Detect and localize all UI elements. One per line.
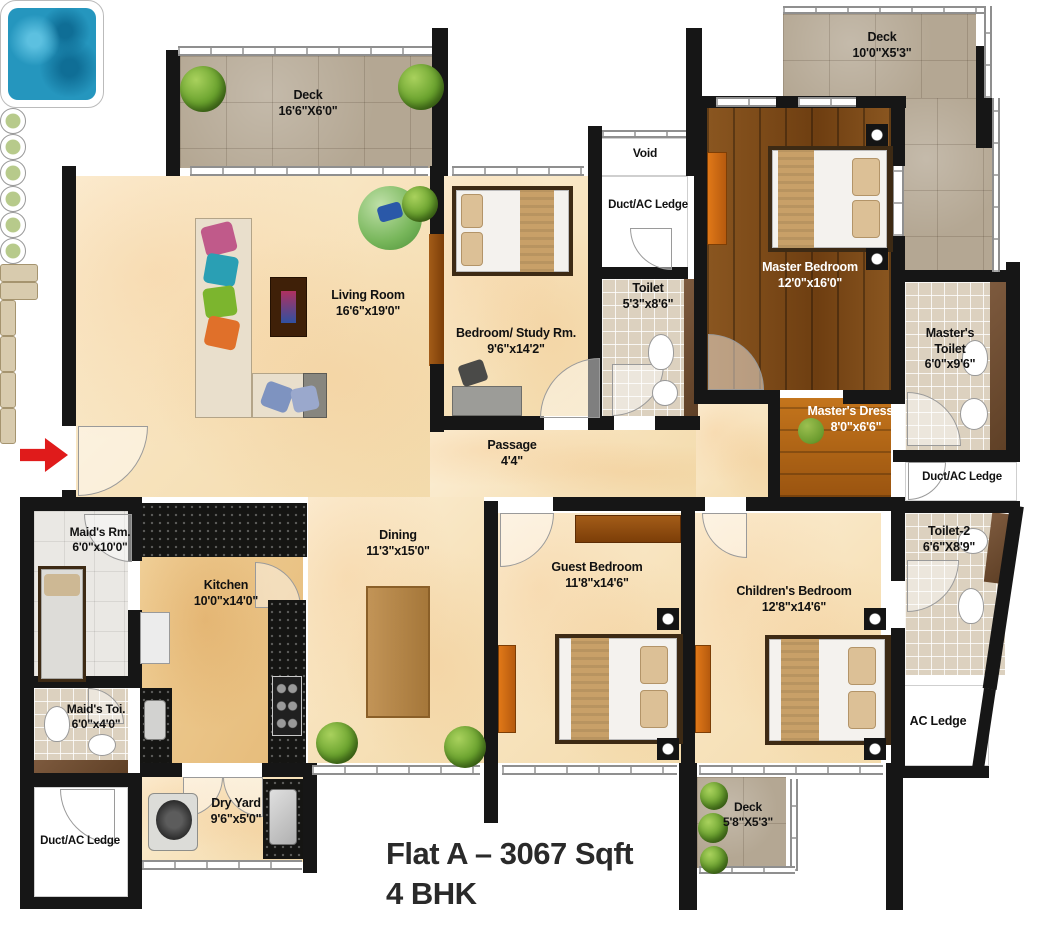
- wall: [438, 416, 544, 430]
- room-name: Master's Toilet: [926, 326, 975, 356]
- kitchen-stove: [272, 676, 302, 736]
- sofa-pillow: [202, 285, 238, 319]
- wall: [1006, 262, 1020, 458]
- floor-plan: Deck 16'6"X6'0" Living Room 16'6"x19'0" …: [0, 0, 1050, 925]
- wall: [746, 497, 905, 511]
- maids-toilet-sill: [34, 760, 128, 773]
- wall: [768, 398, 780, 497]
- wall: [600, 267, 688, 279]
- room-name: Master Bedroom: [762, 260, 858, 274]
- room-label-maids-room: Maid's Rm. 6'0"x10'0": [70, 525, 131, 555]
- room-label-toilet-1: Toilet 5'3"x8'6": [623, 281, 674, 312]
- master-bed-pillow: [852, 158, 880, 196]
- plant: [402, 186, 438, 222]
- room-dims: 4'4": [487, 454, 536, 470]
- wall: [891, 628, 905, 775]
- plan-title-line1: Flat A – 3067 Sqft: [386, 834, 633, 874]
- dining-chair: [0, 264, 38, 282]
- guest-wardrobe: [575, 515, 681, 543]
- room-label-deck-bottom: Deck 5'8"X5'3": [723, 800, 773, 830]
- children-tv-console: [695, 645, 711, 733]
- room-dims: 16'6"x19'0": [331, 304, 405, 320]
- room-label-deck-top-right: Deck 10'0"X5'3": [853, 30, 912, 61]
- column-post: [864, 738, 886, 760]
- dining-chair: [0, 372, 16, 408]
- masters-toilet-vanity: [990, 282, 1006, 450]
- study-bed-pillow: [461, 194, 483, 228]
- room-dims: 5'3"x8'6": [623, 297, 674, 313]
- room-label-kitchen: Kitchen 10'0"x14'0": [194, 578, 258, 609]
- room-dims: 11'8"x14'6": [551, 576, 642, 592]
- room-label-master-bedroom: Master Bedroom 12'0"x16'0": [762, 260, 858, 291]
- dining-plate: [0, 160, 26, 186]
- master-window: [798, 97, 856, 107]
- masters-toilet-sink: [960, 398, 988, 430]
- plant: [316, 722, 358, 764]
- room-label-duct-bottom-left: Duct/AC Ledge: [40, 834, 120, 848]
- room-label-duct-right: Duct/AC Ledge: [922, 470, 1002, 484]
- wall: [891, 501, 905, 581]
- room-dims: 8'0"x6'6": [807, 420, 904, 436]
- deck-tr-railing: [783, 6, 985, 14]
- toilet-1-sink: [652, 380, 678, 406]
- guest-tv-console: [498, 645, 516, 733]
- kitchen-top-counter: [140, 503, 307, 557]
- room-name: Toilet-2: [928, 524, 970, 538]
- room-dims: 6'0"x10'0": [70, 540, 131, 555]
- master-bed-pillow: [852, 200, 880, 238]
- room-dims: 12'8"x14'6": [736, 600, 851, 616]
- wall: [891, 96, 905, 166]
- guest-window: [502, 765, 677, 775]
- bedroom-study-window: [452, 166, 584, 176]
- dining-window: [312, 765, 480, 775]
- tv-screen: [281, 291, 296, 323]
- plan-title-line2: 4 BHK: [386, 874, 633, 914]
- master-bed-blanket: [778, 150, 814, 248]
- room-label-ac-ledge: AC Ledge: [910, 714, 967, 730]
- guest-bed-pillow: [640, 690, 668, 728]
- dining-plate: [0, 238, 26, 264]
- jacuzzi-deck-railing: [992, 98, 1000, 272]
- dining-plate: [0, 186, 26, 212]
- column-post: [657, 608, 679, 630]
- room-name: Kitchen: [204, 578, 248, 592]
- wall: [128, 773, 142, 909]
- room-name: Living Room: [331, 288, 405, 302]
- master-tv-console: [707, 152, 727, 245]
- room-name: Duct/AC Ledge: [40, 835, 120, 847]
- column-post: [657, 738, 679, 760]
- room-name: Passage: [487, 438, 536, 452]
- wall: [303, 763, 317, 873]
- room-name: Duct/AC Ledge: [922, 471, 1002, 483]
- room-name: AC Ledge: [910, 714, 967, 728]
- column-post: [866, 248, 888, 270]
- guest-bed-blanket: [571, 638, 609, 740]
- room-label-living: Living Room 16'6"x19'0": [331, 288, 405, 319]
- room-label-maids-toilet: Maid's Toi. 6'0"x4'0": [67, 702, 125, 732]
- maid-bed-pillow: [44, 574, 80, 596]
- dining-plate: [0, 134, 26, 160]
- wall: [62, 166, 76, 426]
- plant: [180, 66, 226, 112]
- room-label-guest-bedroom: Guest Bedroom 11'8"x14'6": [551, 560, 642, 591]
- room-dims: 6'0"x9'6": [911, 357, 989, 373]
- room-dims: 9'6"x5'0": [211, 812, 262, 828]
- wall: [905, 501, 1020, 513]
- room-label-masters-dresser: Master's Dresser 8'0"x6'6": [807, 404, 904, 435]
- room-name: Deck: [734, 800, 762, 814]
- wall: [20, 897, 142, 909]
- wall: [262, 763, 307, 777]
- room-label-dining: Dining 11'3"x15'0": [366, 528, 430, 559]
- room-name: Dining: [379, 528, 417, 542]
- room-dims: 10'0"X5'3": [853, 46, 912, 62]
- washing-machine-drum: [156, 800, 192, 840]
- maids-toilet-sink: [88, 734, 116, 756]
- plant: [398, 64, 444, 110]
- study-bed-pillow: [461, 232, 483, 266]
- wall: [20, 773, 142, 787]
- room-dims: 11'3"x15'0": [366, 544, 430, 560]
- dining-chair: [0, 408, 16, 444]
- wall: [893, 766, 989, 778]
- room-label-bedroom-study: Bedroom/ Study Rm. 9'6"x14'2": [456, 326, 576, 357]
- room-name: Duct/AC Ledge: [608, 199, 688, 211]
- wall: [600, 416, 614, 430]
- wall: [20, 497, 142, 511]
- room-name: Children's Bedroom: [736, 584, 851, 598]
- room-label-duct-top: Duct/AC Ledge: [608, 198, 688, 212]
- guest-bed-pillow: [640, 646, 668, 684]
- plant: [700, 846, 728, 874]
- sofa-pillow: [203, 252, 240, 287]
- plant: [444, 726, 486, 768]
- wall: [679, 763, 697, 910]
- children-bed-blanket: [781, 639, 819, 741]
- room-dims: 10'0"x14'0": [194, 594, 258, 610]
- wall: [886, 763, 903, 910]
- column-post: [866, 124, 888, 146]
- wall: [694, 96, 707, 392]
- deck-railing: [178, 46, 432, 56]
- room-name: Deck: [293, 88, 322, 102]
- wall: [140, 763, 182, 777]
- room-dims: 16'6"X6'0": [279, 104, 338, 120]
- room-name: Deck: [867, 30, 896, 44]
- room-dims: 9'6"x14'2": [456, 342, 576, 358]
- toilet-2-wc: [958, 588, 984, 624]
- study-desk: [452, 386, 522, 416]
- master-window: [716, 97, 776, 107]
- jacuzzi-water: [8, 8, 96, 100]
- room-name: Maid's Rm.: [70, 525, 131, 539]
- living-bedroom-door-panel: [429, 234, 444, 366]
- jacuzzi: [0, 0, 104, 108]
- living-window: [190, 166, 428, 176]
- room-label-void: Void: [633, 146, 657, 161]
- kitchen-fridge: [140, 612, 170, 664]
- room-label-passage: Passage 4'4": [487, 438, 536, 469]
- sofa-pillow: [203, 315, 241, 351]
- room-name: Bedroom/ Study Rm.: [456, 326, 576, 340]
- study-bed-blanket: [520, 190, 554, 272]
- dry-yard-railing: [142, 860, 302, 870]
- wall: [484, 775, 498, 823]
- room-dims: 6'6"X8'9": [923, 540, 975, 556]
- wall: [681, 501, 695, 773]
- dining-chair: [0, 336, 16, 372]
- dry-yard-sink: [269, 789, 297, 845]
- deck-tr-railing: [984, 6, 992, 98]
- wall: [166, 50, 180, 176]
- dining-table: [366, 586, 430, 718]
- wall: [655, 416, 700, 430]
- room-label-masters-toilet: Master's Toilet 6'0"x9'6": [911, 326, 989, 373]
- room-dims: 5'8"X5'3": [723, 815, 773, 830]
- room-name: Master's Dresser: [807, 404, 904, 418]
- dining-plate: [0, 108, 26, 134]
- wall: [20, 497, 34, 909]
- room-name: Maid's Toi.: [67, 702, 125, 716]
- room-name: Dry Yard: [211, 796, 261, 810]
- room-name: Void: [633, 146, 657, 160]
- wall: [891, 236, 905, 404]
- room-dims: 12'0"x16'0": [762, 276, 858, 292]
- children-window: [699, 765, 883, 775]
- room-label-children-bedroom: Children's Bedroom 12'8"x14'6": [736, 584, 851, 615]
- dining-chair: [0, 300, 16, 336]
- wall: [893, 450, 1020, 462]
- kitchen-sink: [144, 700, 166, 740]
- wall: [484, 501, 498, 775]
- room-label-dry-yard: Dry Yard 9'6"x5'0": [211, 796, 262, 827]
- room-label-toilet-2: Toilet-2 6'6"X8'9": [923, 524, 975, 555]
- dining-plate: [0, 212, 26, 238]
- toilet-1-wc: [648, 334, 674, 370]
- room-dims: 6'0"x4'0": [67, 717, 125, 732]
- master-side-window: [892, 166, 904, 236]
- children-bed-pillow: [848, 647, 876, 685]
- children-bed-pillow: [848, 691, 876, 729]
- deck-b-railing: [790, 779, 798, 871]
- room-passage: [430, 430, 696, 497]
- room-name: Guest Bedroom: [551, 560, 642, 574]
- room-label-deck-top-left: Deck 16'6"X6'0": [279, 88, 338, 119]
- column-post: [864, 608, 886, 630]
- void-railing: [602, 130, 686, 138]
- room-name: Toilet: [632, 281, 663, 295]
- plan-title: Flat A – 3067 Sqft 4 BHK: [386, 834, 633, 913]
- dining-chair: [0, 282, 38, 300]
- entrance-arrow-icon: [20, 438, 68, 472]
